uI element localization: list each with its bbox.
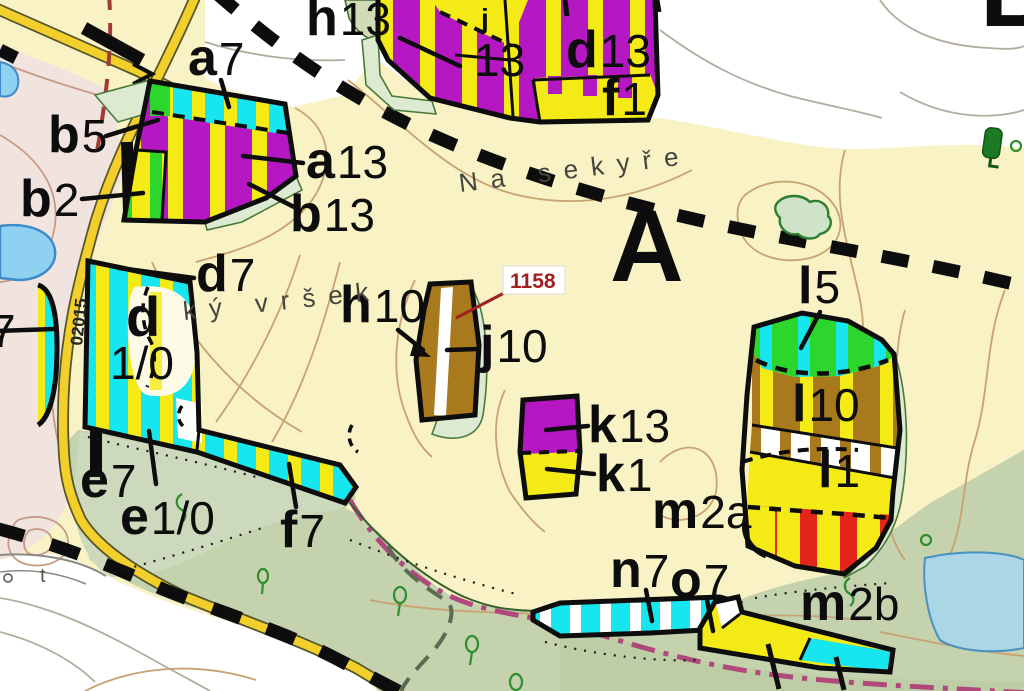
region-label-B-partial: B <box>980 0 1024 48</box>
forest-stand-map: a7 b5 b2 a13 b13 h13 13 d13 f1 d7 d 1/0 … <box>0 0 1024 691</box>
stand-label-a13: a13 <box>306 132 388 190</box>
stand-label-b5: b5 <box>48 106 107 164</box>
stand-k <box>520 396 580 498</box>
region-label-A: A <box>610 189 684 303</box>
stand-label-n7: n7 <box>610 541 669 599</box>
stand-label-l1: l1 <box>818 441 860 499</box>
stand-label-b2: b2 <box>20 170 79 228</box>
stand-label-o7: o7 <box>670 551 729 609</box>
stand-label-h13: h13 <box>306 0 391 47</box>
stand-label-b13: b13 <box>290 185 375 243</box>
stand-label-f7: f7 <box>280 501 325 559</box>
stand-label-m2b: m2b <box>800 574 899 632</box>
stand-label-a7: a7 <box>188 29 245 87</box>
parcel-reference-text: 1158 <box>510 270 556 293</box>
stand-label-7-left: 7 <box>0 305 16 357</box>
stand-label-13: 13 <box>474 34 525 86</box>
lake-bottom-right <box>924 552 1024 651</box>
stand-label-m2a: m2a <box>652 482 752 540</box>
top-edge-glyph: j <box>480 3 489 34</box>
stand-label-e1-0: e1/0 <box>120 488 215 546</box>
ground-glyph-t: t <box>40 565 46 587</box>
stand-label-l10: l10 <box>792 375 860 433</box>
stand-label-j10: j10 <box>479 316 548 374</box>
stand-label-l5: l5 <box>798 257 840 315</box>
stand-label-f1: f1 <box>602 69 647 127</box>
stand-label-1-0: 1/0 <box>110 337 174 389</box>
stand-label-k1: k1 <box>596 445 653 503</box>
